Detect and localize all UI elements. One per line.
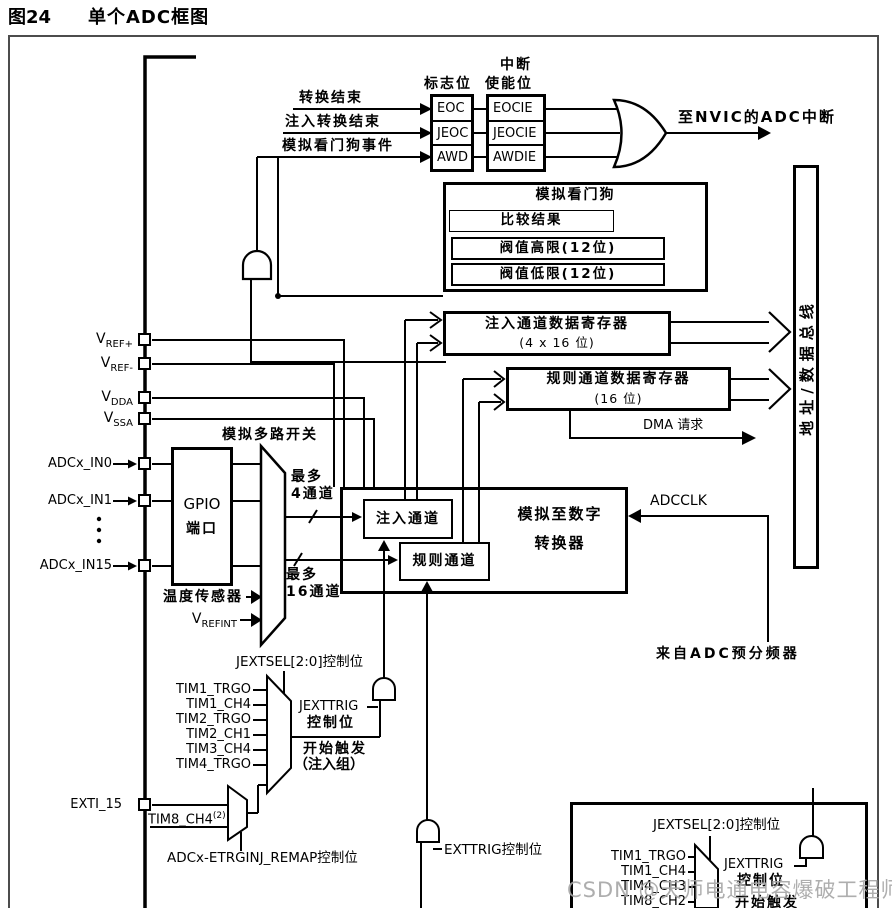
pin-label-vref-plus: VREF+ (53, 331, 133, 350)
label-max16-1: 最多 (286, 567, 318, 583)
label-enable-header-2: 使能位 (485, 76, 533, 92)
pin-label-adcx-in0: ADCx_IN0 (27, 457, 112, 472)
adc-block-diagram: 图24 单个ADC框图 EOC JEOC AWD EOCIE JEOCIE AW… (0, 0, 892, 908)
label-dma-request: DMA 请求 (643, 419, 703, 434)
label-max4-1: 最多 (291, 469, 323, 485)
open-arrowheads (430, 312, 790, 410)
adc-core-title-1: 模拟至数字 (517, 506, 602, 523)
label-enable-header-1: 中断 (500, 57, 532, 73)
remap-mux-shape (228, 786, 247, 840)
pin-label-vdda: VDDA (53, 389, 133, 408)
pad-exti15 (138, 798, 151, 811)
label-analog-mux: 模拟多路开关 (222, 427, 318, 443)
adc-core-title: 模拟至数字 转换器 (496, 506, 624, 553)
pad-adcx-in0 (138, 457, 151, 470)
pin-label-exti15: EXTI_15 (52, 798, 122, 813)
jexttrig-gate (373, 678, 395, 700)
pad-vdda (138, 391, 151, 404)
label-jexttrig2-1: JEXTTRIG (724, 858, 783, 873)
trigger-source-tim1-ch4: TIM1_CH4 (151, 698, 251, 713)
figure-title: 单个ADC框图 (88, 8, 209, 29)
trigger-source-tim2-ch1: TIM2_CH1 (151, 728, 251, 743)
trigger-source-tim3-ch4: TIM3_CH4 (151, 743, 251, 758)
label-jextsel-bits-2: JEXTSEL[2:0]控制位 (653, 818, 780, 834)
nvic-or-gate (614, 100, 666, 167)
label-exttrig-bit: EXTTRIG控制位 (444, 843, 542, 859)
label-start-trigger-2: （注入组） (294, 757, 364, 773)
pad-vssa (138, 412, 151, 425)
label-jexttrig-2: 控制位 (307, 715, 355, 731)
label-tim8-ch4: TIM8_CH4(2) (148, 811, 226, 828)
watchdog-title: 模拟看门狗 (443, 187, 708, 203)
trigger2-source-tim1-trgo: TIM1_TRGO (586, 850, 686, 865)
watermark: CSDN @天师电通电容爆破工程师 (567, 874, 892, 904)
analog-mux-shape (261, 446, 285, 645)
pin-label-vssa: VSSA (53, 410, 133, 429)
wires (113, 57, 813, 908)
regular-trigger-gate (800, 836, 823, 858)
label-start-trigger-1: 开始触发 (303, 741, 367, 757)
label-analog-watchdog-event: 模拟看门狗事件 (282, 138, 394, 154)
trigger-source-tim4-trgo: TIM4_TRGO (151, 758, 251, 773)
label-jextsel-bits: JEXTSEL[2:0]控制位 (236, 655, 363, 671)
label-max4-2: 4通道 (291, 486, 335, 502)
pad-adcx-in1 (138, 494, 151, 507)
label-temp-sensor: 温度传感器 (143, 589, 243, 605)
diagram-wires-layer (0, 0, 892, 908)
address-data-bus-label: 地址/数据总线 (796, 168, 818, 566)
label-jexttrig-1: JEXTTRIG (299, 700, 358, 715)
trigger-source-tim1-trgo: TIM1_TRGO (151, 683, 251, 698)
label-end-of-injected-conversion: 注入转换结束 (285, 114, 381, 130)
label-etrginj-remap: ADCx-ETRGINJ_REMAP控制位 (167, 851, 358, 867)
left-rail (145, 57, 196, 908)
label-from-adc-prescaler: 来自ADC预分频器 (656, 646, 800, 662)
exttrig-gate (417, 820, 439, 842)
injected-trigger-mux-shape (267, 676, 291, 793)
label-max16-2: 16通道 (286, 584, 341, 600)
pad-vref-plus (138, 333, 151, 346)
adc-core-title-2: 转换器 (534, 535, 585, 552)
label-nvic-interrupt: 至NVIC的ADC中断 (678, 109, 836, 126)
label-end-of-conversion: 转换结束 (299, 90, 363, 106)
label-adcclk: ADCCLK (650, 493, 707, 509)
label-vrefint: VREFINT (167, 611, 237, 630)
label-flag-header: 标志位 (424, 76, 472, 92)
pin-label-adcx-in15: ADCx_IN15 (27, 559, 112, 574)
awd-event-gate (243, 251, 271, 279)
trigger-source-tim2-trgo: TIM2_TRGO (151, 713, 251, 728)
pad-adcx-in15 (138, 559, 151, 572)
pin-label-adcx-in1: ADCx_IN1 (27, 494, 112, 509)
pin-label-vref-minus: VREF- (53, 355, 133, 374)
figure-number: 图24 (8, 8, 51, 29)
pad-vref-minus (138, 357, 151, 370)
